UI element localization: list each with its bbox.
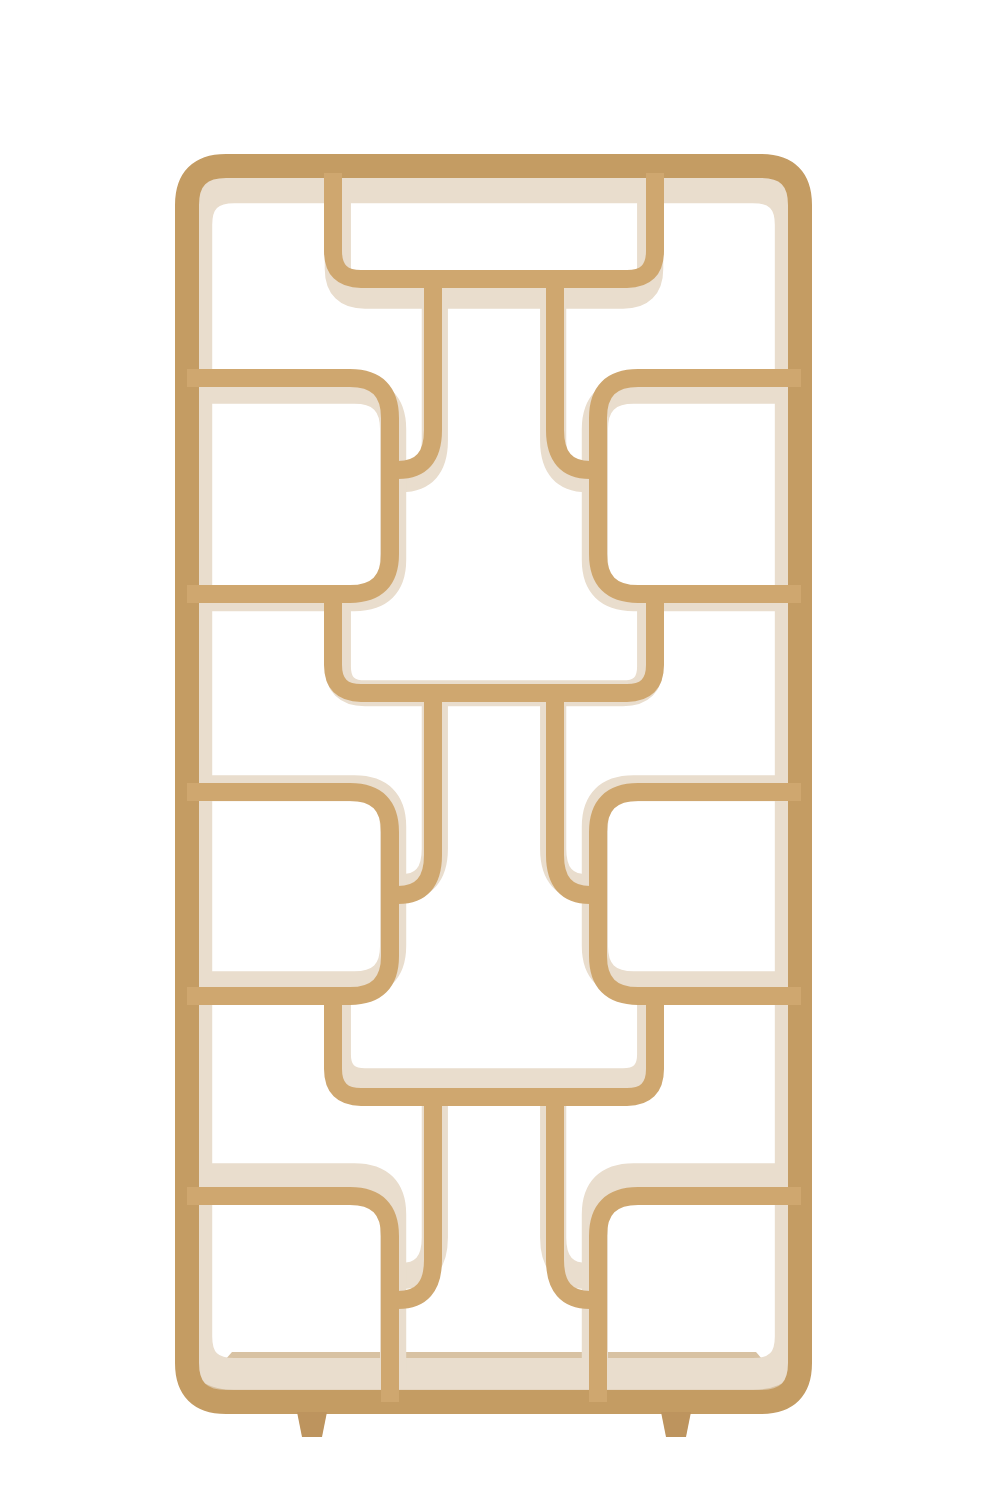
side-shelf-right-row1 [598, 378, 801, 594]
side-shelf-right-row2-wash [595, 788, 792, 984]
side-shelf-left-row2-wash [196, 788, 393, 984]
side-shelf-left-row1-wash [196, 391, 393, 598]
side-shelf-left-row2 [187, 792, 390, 996]
etagere-svg [0, 0, 1000, 1500]
side-shelf-left-row1 [187, 378, 390, 594]
foot-right [661, 1412, 691, 1437]
side-shelf-right-row2 [598, 792, 801, 996]
foot-left [297, 1412, 327, 1437]
feet-group [297, 1412, 691, 1437]
side-shelf-right-row1-wash [595, 391, 792, 598]
tray-row2-wash [338, 590, 650, 694]
product-photo-canvas [0, 0, 1000, 1500]
wood-front-layer [187, 166, 801, 1402]
